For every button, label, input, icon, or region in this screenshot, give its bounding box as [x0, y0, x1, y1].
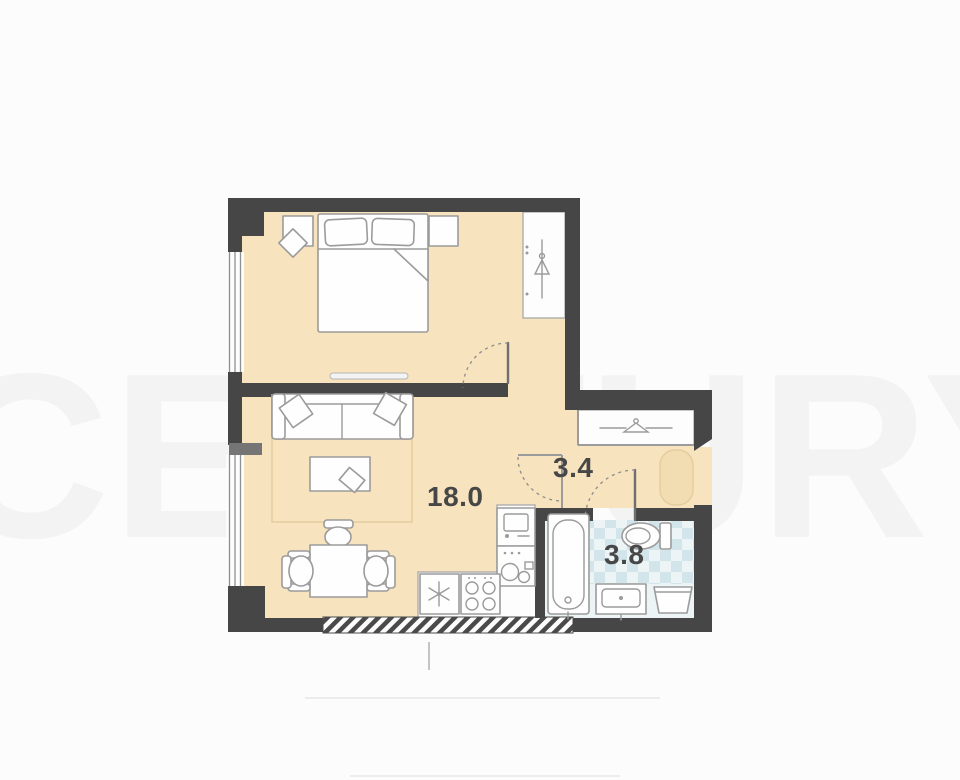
- floorplan-image: CENTURY: [0, 0, 960, 780]
- room-area-label-living: 18.0: [427, 483, 484, 511]
- bathtub-icon: [548, 514, 589, 619]
- entrance-opening-floor: [694, 447, 712, 506]
- misc-marks: [305, 642, 660, 776]
- entrance-rug: [660, 450, 693, 505]
- living-room-window: [226, 455, 244, 586]
- fridge-snowflake-icon: [420, 574, 459, 614]
- bottom-wall-left: [228, 618, 323, 632]
- right-wall-lower: [694, 505, 712, 632]
- top-wall: [228, 198, 580, 212]
- left-wall-pier: [229, 443, 262, 455]
- room-area-label-bath: 3.8: [604, 541, 644, 569]
- chair-top-seat: [325, 527, 351, 547]
- bathroom-top-wall-right: [635, 508, 694, 521]
- pillow: [372, 218, 415, 245]
- pillow: [324, 218, 367, 246]
- step-wall: [565, 390, 712, 410]
- bedside-rug: [330, 373, 408, 379]
- bottom-wall-hatched: [323, 617, 573, 633]
- double-bowl-sink-icon: [497, 546, 535, 586]
- bedroom-door-opening-floor: [508, 383, 565, 399]
- left-wall-middle: [228, 372, 242, 445]
- sofa: [272, 393, 413, 439]
- bottom-wall-right: [573, 618, 712, 632]
- room-area-label-hall: 3.4: [553, 454, 593, 482]
- bathroom-left-wall: [535, 508, 545, 618]
- bedroom-window: [226, 252, 244, 372]
- washbasin-icon: [596, 584, 646, 620]
- nightstand-right: [429, 216, 458, 246]
- dining-table: [310, 545, 367, 597]
- basket-icon: [654, 587, 692, 613]
- right-wall-upper: [694, 410, 712, 451]
- living-corner-floor: [538, 397, 565, 410]
- bedroom-right-wall: [565, 198, 580, 398]
- washing-machine-icon: [497, 508, 535, 546]
- four-burners-icon: [461, 574, 500, 614]
- floorplan-drawing: [0, 0, 960, 780]
- left-wall-upper: [228, 212, 242, 254]
- chair-right: [364, 551, 395, 591]
- hall-closet: [578, 410, 694, 445]
- chair-left: [282, 551, 313, 591]
